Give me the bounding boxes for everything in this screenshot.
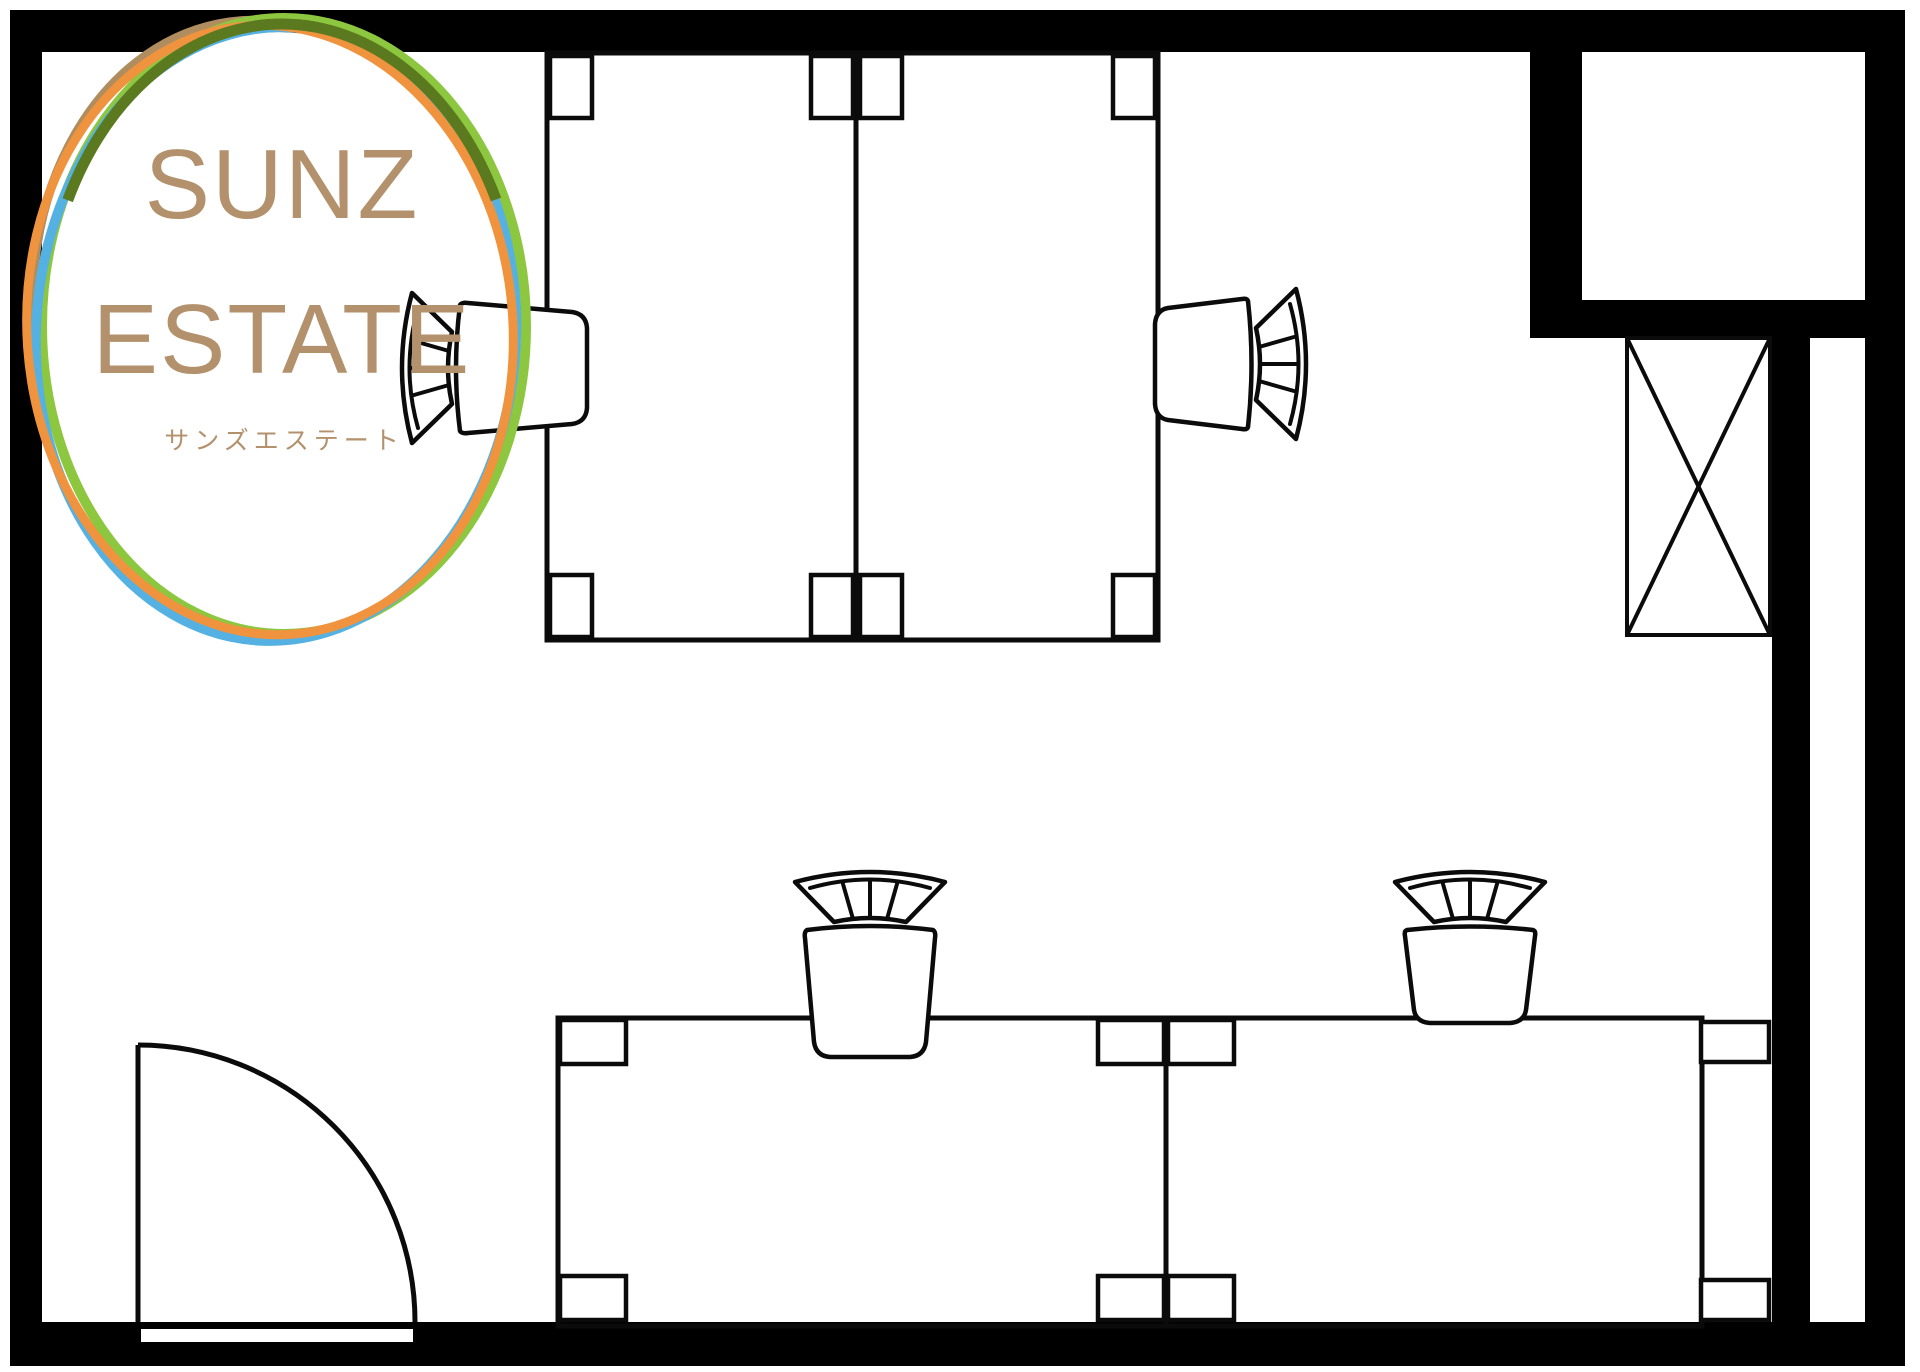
desk-top-right [856,53,1158,640]
outer-wall-right [1865,10,1905,1366]
chair-seat [1155,299,1252,430]
desk-leg [1113,575,1155,637]
logo-text-line2: ESTATE [93,284,472,394]
desk-leg [811,56,853,118]
desk-leg [560,1020,626,1064]
desk-leg [1701,1022,1769,1062]
office-chair [1155,289,1306,439]
office-chair [1395,872,1545,1023]
chair-seat [1405,927,1536,1024]
floorplan-page: SUNZ ESTATE サンズエステート [0,0,1920,1372]
pipe-shaft [1627,338,1770,635]
desk-leg [1168,1276,1234,1320]
entrance-door [138,1045,415,1342]
desk-leg [1168,1020,1234,1064]
chair-seat [805,926,936,1057]
right-inner-wall [1772,338,1810,1326]
outer-wall-bottom [10,1322,1905,1366]
bottom-desks [558,1018,1769,1326]
desk-leg [560,1276,626,1320]
desk-leg [550,56,592,118]
desk-leg [1113,56,1155,118]
desk-leg [1098,1276,1164,1320]
outer-wall-left [10,10,42,1366]
desk-leg [550,575,592,637]
closet-left-wall [1530,50,1582,338]
desk-leg [1701,1280,1769,1320]
door-swing-arc [138,1045,415,1322]
desk-bottom-left [558,1018,1166,1326]
door-threshold [141,1329,413,1342]
logo-text-line1: SUNZ [145,129,420,239]
top-desks [547,53,1158,640]
desk-bottom-right [1166,1018,1702,1326]
closet-room [1530,50,1905,338]
floorplan-svg: SUNZ ESTATE サンズエステート [0,0,1920,1372]
desk-leg [1098,1020,1164,1064]
office-chair [795,872,945,1057]
desk-leg [860,575,902,637]
logo-text-subtitle: サンズエステート [164,427,404,455]
desk-leg [860,56,902,118]
closet-bottom-wall [1530,300,1905,338]
desk-leg [811,575,853,637]
desk-top-left [547,53,856,640]
